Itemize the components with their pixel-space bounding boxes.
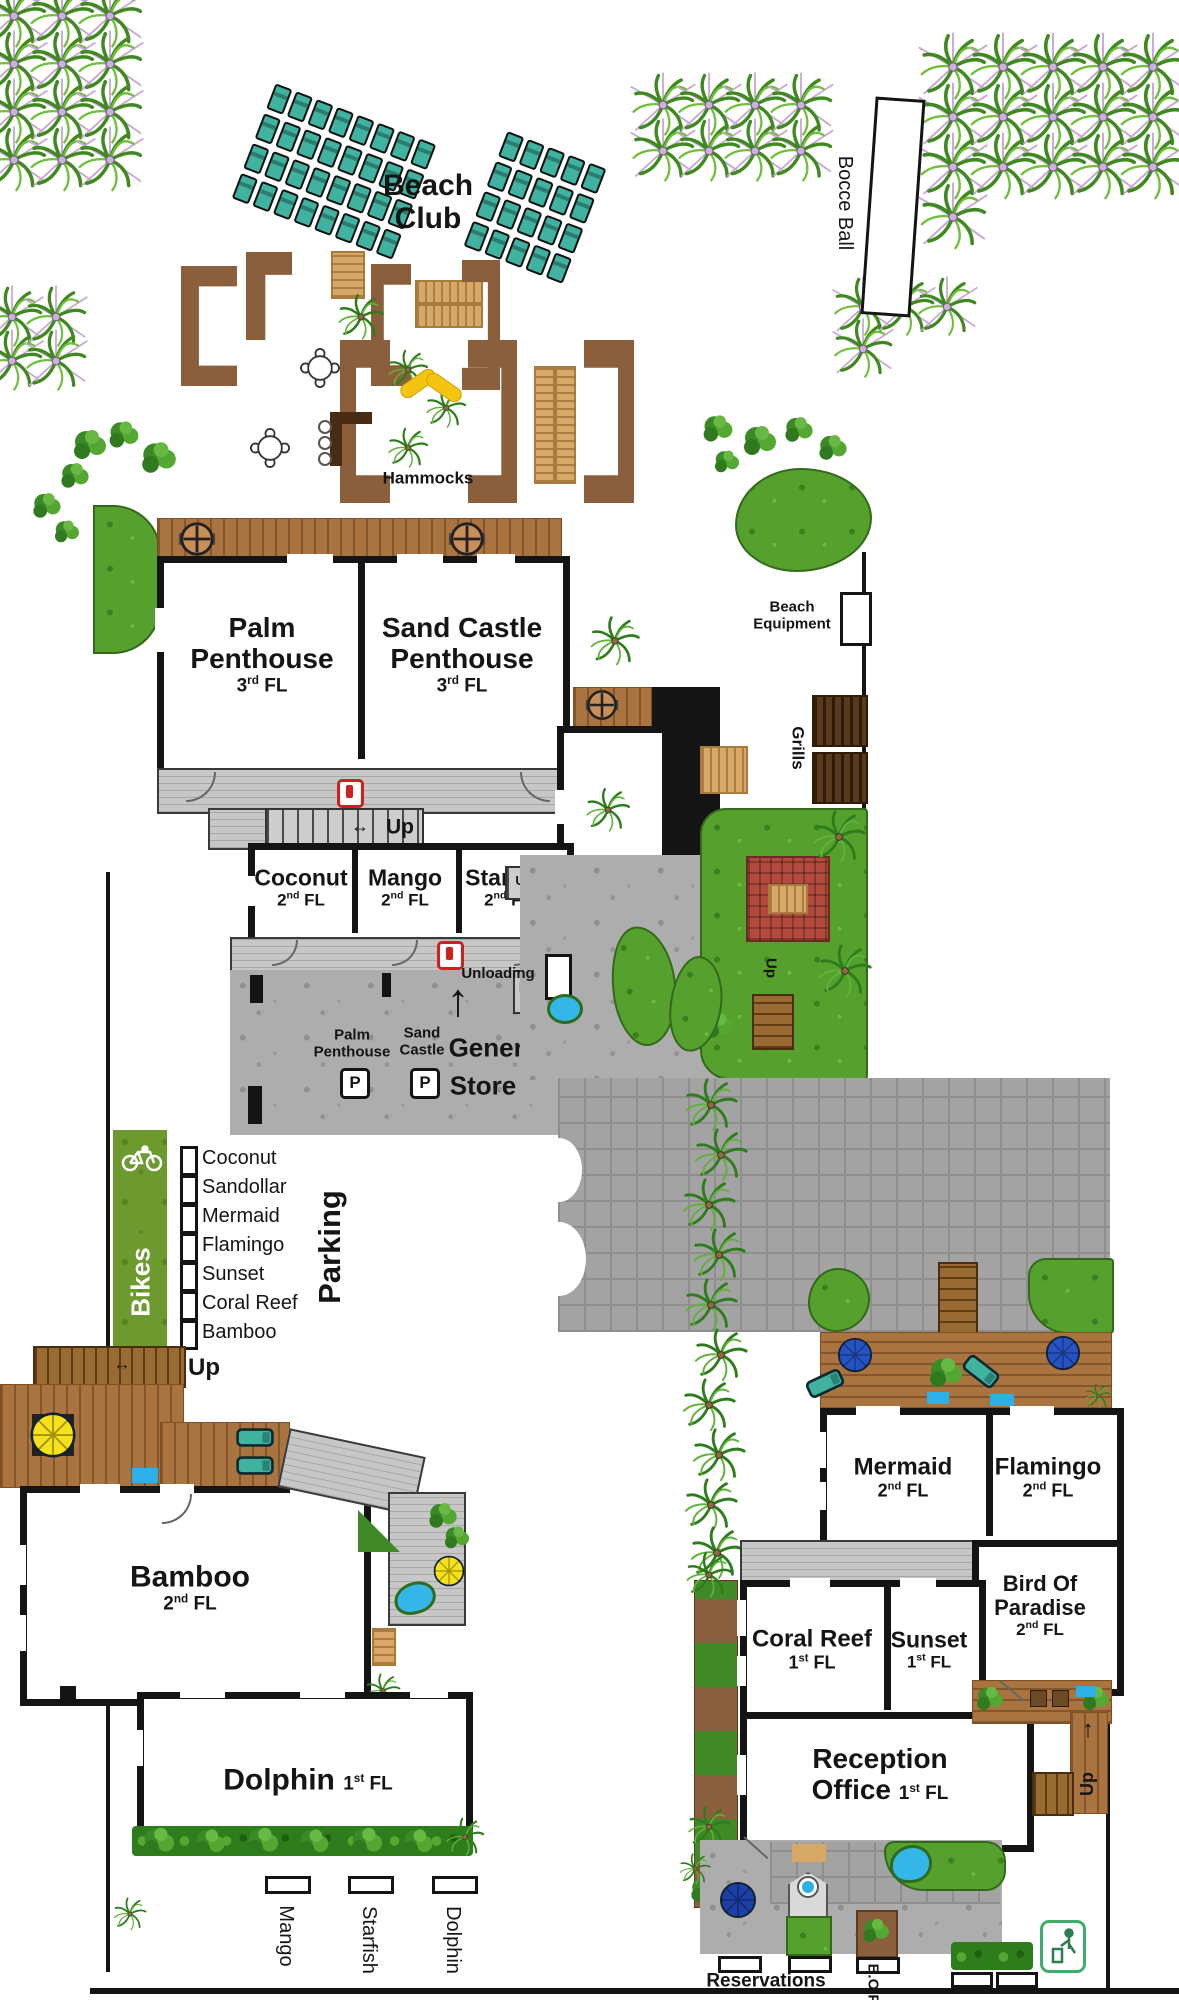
- bush: [860, 1914, 892, 1946]
- sand-castle-parking-label: SandCastle: [399, 1026, 444, 1059]
- bush: [106, 416, 142, 452]
- picnic-table: [415, 304, 483, 328]
- hammocks-label: Hammocks: [383, 470, 474, 489]
- room-label-sunset: Sunset 1st FL: [891, 1628, 968, 1673]
- fire-extinguisher-icon: [437, 941, 464, 970]
- general-store-label2: Store: [450, 1072, 516, 1101]
- stairs-to-deck: [938, 1262, 978, 1336]
- unloading-label: Unloading: [461, 966, 534, 983]
- umbrella-table: [1044, 1334, 1082, 1372]
- bikes-label: Bikes: [127, 1247, 156, 1316]
- lawn-patch: [1028, 1258, 1114, 1334]
- umbrella-table: [718, 1880, 758, 1920]
- bush: [442, 1522, 472, 1552]
- deck-table: [448, 520, 486, 558]
- palm-tree: [112, 1896, 148, 1932]
- parking-list-item: Sandollar: [202, 1176, 287, 1198]
- bush: [58, 458, 92, 492]
- palm-tree: [336, 292, 386, 342]
- fountain-bed: [786, 1916, 832, 1956]
- room-label-bird-of-paradise: Bird OfParadise 2nd FL: [994, 1572, 1086, 1640]
- pond: [547, 994, 583, 1024]
- deck-table: [178, 520, 216, 558]
- palm-grove-top-left-lower: [0, 295, 120, 435]
- stairs-courtyard: [752, 994, 794, 1050]
- grills-label: Grills: [788, 726, 807, 769]
- bush: [52, 516, 82, 546]
- room-label-palm-penthouse: PalmPenthouse 3rd FL: [190, 613, 333, 697]
- palm-tree: [386, 426, 430, 470]
- deck-chair: [1030, 1690, 1047, 1707]
- parking-spot-label: Mango: [275, 1905, 297, 1966]
- room-label-mango: Mango 2nd FL: [368, 866, 442, 911]
- stairs-rear: [1032, 1772, 1074, 1816]
- hedge-bracket: [468, 340, 517, 503]
- hedge-bracket: [181, 266, 237, 386]
- beach-club-label: BeachClub: [383, 169, 473, 235]
- palm-tree: [684, 1550, 734, 1600]
- palm-penthouse-parking-label: PalmPenthouse: [314, 1028, 391, 1061]
- parking-sign-icon: P: [410, 1068, 440, 1099]
- stairs-arrow: ↔: [114, 1356, 131, 1375]
- blue-mat: [132, 1468, 158, 1483]
- lawn-strip-left: [93, 505, 161, 654]
- umbrella-table: [432, 1554, 466, 1588]
- parking-list-item: Coral Reef: [202, 1292, 298, 1314]
- parking-space-marker: [180, 1291, 198, 1321]
- palm-grove-mid-right: [640, 82, 835, 332]
- up-label: Up: [1078, 1772, 1098, 1796]
- beach-equipment-box: [840, 592, 872, 646]
- parking-sign-icon: P: [340, 1068, 370, 1099]
- room-label-mermaid: Mermaid 2nd FL: [854, 1454, 953, 1501]
- palm-tree: [810, 808, 868, 866]
- bush: [192, 1824, 228, 1860]
- deck-plants: [974, 1682, 1006, 1714]
- hedge-bracket: [584, 340, 634, 503]
- parking-space-marker: [996, 1972, 1038, 1988]
- bush: [712, 446, 742, 476]
- room-label-reception: Reception Office 1st FL: [812, 1744, 949, 1806]
- parking-list-item: Flamingo: [202, 1234, 284, 1256]
- bush: [700, 410, 736, 446]
- grill: [812, 695, 868, 747]
- bush: [400, 1824, 436, 1860]
- stairs-arrow: ↔: [351, 817, 369, 837]
- resort-map: Bocce Ball BeachClub Hammocks PalmPentho…: [0, 0, 1179, 2000]
- parking-list-item: Sunset: [202, 1263, 264, 1285]
- bush: [740, 420, 780, 460]
- bop-label: B.O.P: [864, 1964, 881, 2000]
- parking-space-marker: [180, 1175, 198, 1205]
- parking-label: Parking: [313, 1190, 347, 1304]
- bench: [372, 1628, 396, 1666]
- fountain-water: [799, 1878, 817, 1896]
- parking-list-item: Bamboo: [202, 1321, 277, 1343]
- bush: [348, 1822, 386, 1860]
- bar-stool: [318, 420, 332, 434]
- lounge-chair: [235, 1456, 275, 1475]
- room-label-bamboo: Bamboo 2nd FL: [130, 1560, 250, 1615]
- bar-stool: [318, 452, 332, 466]
- room-label-dolphin: Dolphin 1st FL: [223, 1764, 393, 1797]
- up-label: Up: [762, 958, 779, 978]
- stairs-arrow: ↑: [1082, 1717, 1094, 1743]
- lawn-blob: [735, 468, 872, 572]
- bush: [244, 1822, 282, 1860]
- parking-space-marker: [348, 1876, 394, 1894]
- bike-icon: [120, 1144, 164, 1172]
- bush: [296, 1824, 332, 1860]
- parking-spot-label: Dolphin: [442, 1906, 464, 1974]
- bush: [138, 436, 180, 478]
- hedge-bar: [951, 1942, 1033, 1970]
- hedge-corner: [246, 252, 292, 340]
- general-store-arrow: ↑: [447, 975, 470, 1026]
- beach-equipment-label: BeachEquipment: [753, 600, 831, 633]
- bar-stool: [318, 436, 332, 450]
- blue-mat: [927, 1392, 949, 1404]
- pond: [890, 1845, 932, 1883]
- umbrella-table: [28, 1410, 78, 1460]
- bush: [816, 430, 850, 464]
- unloading-box: [545, 954, 572, 1000]
- palm-tree: [678, 1852, 712, 1886]
- parking-space-marker: [180, 1204, 198, 1234]
- deck-plants: [926, 1352, 966, 1392]
- palm-grove-top-left: [0, 0, 180, 312]
- picnic-table: [415, 280, 483, 304]
- parking-spot-label: Starfish: [358, 1906, 380, 1974]
- penthouse-divider-wall: [358, 560, 365, 768]
- parking-space-marker: [180, 1146, 198, 1176]
- room-label-coconut: Coconut 2nd FL: [254, 866, 347, 911]
- lounge-chair: [235, 1428, 275, 1447]
- parking-list-item: Coconut: [202, 1147, 277, 1169]
- picnic-table: [700, 746, 748, 794]
- parking-space-marker: [951, 1972, 993, 1988]
- bush: [782, 412, 816, 446]
- palm-tree: [588, 614, 642, 668]
- trash-recycle-icon: [1040, 1920, 1086, 1973]
- stairs-bamboo: [33, 1346, 186, 1388]
- blue-mat: [1076, 1686, 1096, 1697]
- deck-chair: [1052, 1690, 1069, 1707]
- blue-mat: [990, 1394, 1014, 1406]
- palm-tree: [1084, 1382, 1112, 1410]
- doormat: [792, 1844, 826, 1862]
- round-table: [250, 428, 290, 468]
- parking-space-marker: [432, 1876, 478, 1894]
- wall-stub: [60, 1686, 76, 1700]
- round-table: [300, 348, 340, 388]
- palm-tree: [444, 1816, 486, 1858]
- parking-space-marker: [180, 1233, 198, 1263]
- parking-space-marker: [180, 1262, 198, 1292]
- picnic-table: [555, 366, 576, 484]
- up-label: Up: [188, 1355, 220, 1381]
- parking-list-item: Mermaid: [202, 1205, 280, 1227]
- room-label-sand-castle: Sand CastlePenthouse 3rd FL: [382, 613, 542, 697]
- bocce-label: Bocce Ball: [834, 156, 856, 251]
- palm-tree: [584, 786, 632, 834]
- fire-extinguisher-icon: [337, 779, 364, 808]
- umbrella-table: [836, 1336, 874, 1374]
- property-line-bottom: [90, 1988, 1179, 1994]
- deck-table: [585, 688, 619, 722]
- room-label-coral-reef: Coral Reef 1st FL: [752, 1626, 872, 1673]
- parking-space-marker: [265, 1876, 311, 1894]
- bush: [140, 1822, 178, 1860]
- picnic-table: [534, 366, 555, 484]
- up-label: Up: [386, 815, 414, 838]
- grill: [812, 752, 868, 804]
- pergola-table: [768, 884, 808, 914]
- palm-tree: [816, 942, 874, 1000]
- room-label-flamingo: Flamingo 2nd FL: [995, 1454, 1102, 1501]
